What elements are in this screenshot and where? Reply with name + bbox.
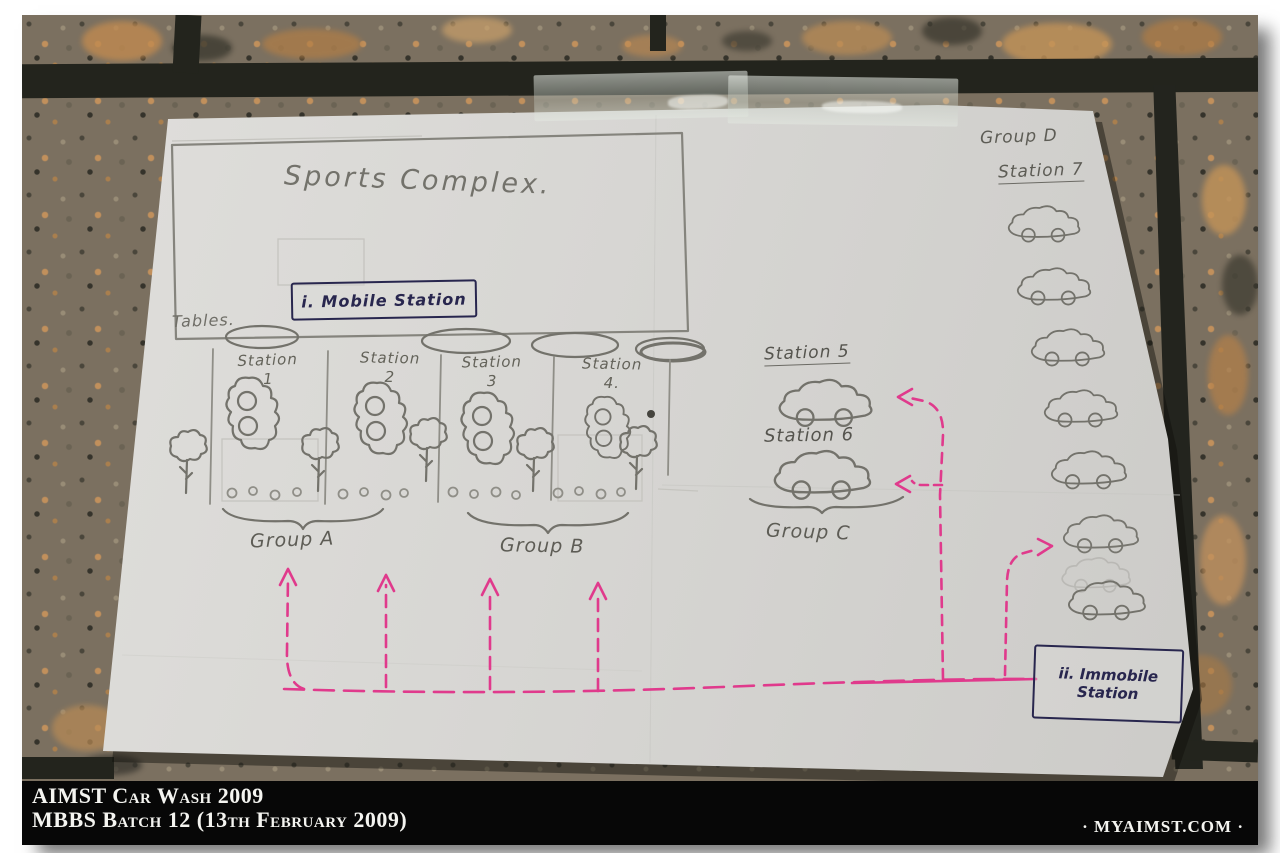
car-side-icon xyxy=(1064,515,1138,552)
group-b-brace xyxy=(468,513,628,533)
group-b-label: Group B xyxy=(500,534,585,557)
station-7-label: Station 7 xyxy=(998,160,1084,183)
tree-icon xyxy=(410,418,447,481)
caption-line2: MBBS Batch 12 (13th February 2009) xyxy=(32,808,407,832)
immobile-station-box: ii. Immobile Station xyxy=(1032,644,1184,723)
station-3-label: Station 3 xyxy=(444,352,541,392)
car-top-icon xyxy=(354,383,407,454)
mobile-station-label: i. Mobile Station xyxy=(301,289,467,311)
photo-of-hand-drawn-plan: Sports Complex. Tables. i. Mobile Statio… xyxy=(22,15,1258,845)
group-a-brace xyxy=(223,509,383,529)
car-side-icon xyxy=(1009,206,1080,241)
station-5-label: Station 5 xyxy=(764,342,850,365)
tree-icon xyxy=(517,428,554,491)
car-side-icon xyxy=(1018,268,1090,304)
car-top-icon xyxy=(461,393,514,464)
station-6-label: Station 6 xyxy=(764,424,855,447)
car-side-icon xyxy=(775,451,870,499)
stone-dots xyxy=(228,487,626,500)
group-c-brace xyxy=(750,497,903,513)
station-1-label: Station 1 xyxy=(219,349,316,390)
caption-site: · MYAIMST.COM · xyxy=(1082,817,1244,837)
caption-line1: AIMST Car Wash 2009 xyxy=(32,784,407,808)
station-2-label: Station 2 xyxy=(342,348,439,388)
car-side-icon xyxy=(1052,451,1126,488)
car-side-icon xyxy=(1045,390,1117,426)
pencil-dot xyxy=(647,410,655,418)
tree-icon xyxy=(170,430,207,493)
car-side-icon xyxy=(780,380,872,426)
group-d-label: Group D xyxy=(980,126,1058,149)
caption-bar: AIMST Car Wash 2009 MBBS Batch 12 (13th … xyxy=(22,781,1258,845)
station-4-label: Station 4. xyxy=(564,354,661,394)
group-c-label: Group C xyxy=(766,520,851,545)
car-top-icon xyxy=(585,397,630,458)
immobile-station-label-line1: ii. Immobile xyxy=(1058,664,1158,685)
pink-route xyxy=(280,389,1052,692)
tree-icon xyxy=(302,428,339,491)
group-a-label: Group A xyxy=(250,528,335,553)
caption-text: AIMST Car Wash 2009 MBBS Batch 12 (13th … xyxy=(32,784,407,832)
immobile-station-label-line2: Station xyxy=(1077,683,1139,703)
mobile-station-box: i. Mobile Station xyxy=(291,279,478,320)
sketch-drawing xyxy=(22,15,1258,845)
tables-label: Tables. xyxy=(172,310,235,331)
car-side-icon xyxy=(1032,329,1104,365)
